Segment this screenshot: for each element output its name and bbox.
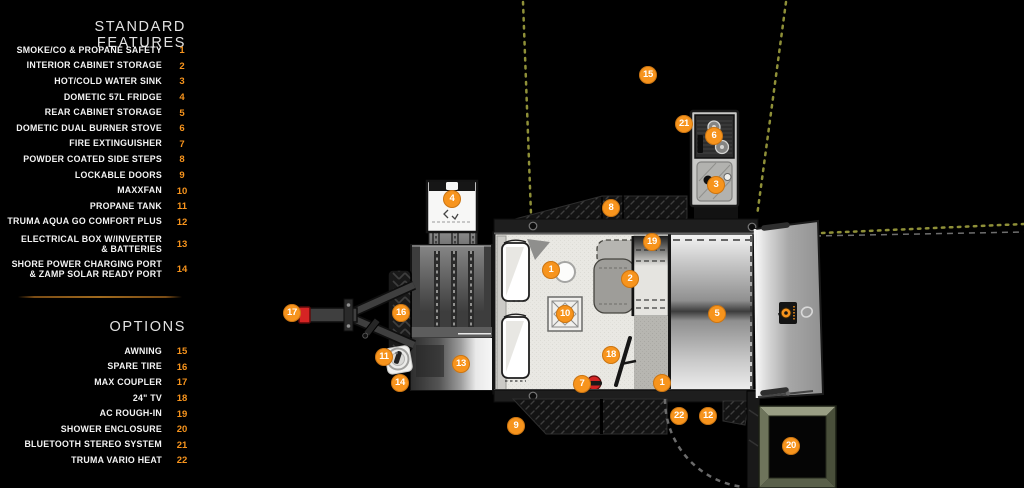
plan-marker: 18	[602, 346, 620, 364]
plan-marker: 11	[375, 348, 393, 366]
plan-marker: 1	[653, 374, 671, 392]
top-wall	[494, 219, 758, 234]
plan-marker: 6	[705, 127, 723, 145]
plan-marker: 13	[452, 355, 470, 373]
plan-marker: 2	[621, 270, 639, 288]
plan-marker: 3	[707, 176, 725, 194]
floorplan: 1 1 2 3 4 5 6 7 8 9 10 11	[0, 0, 1024, 488]
plan-marker: 9	[507, 417, 525, 435]
floorplan-drawing	[0, 0, 1024, 488]
bed-pillow-top	[502, 240, 529, 301]
plan-marker: 7	[573, 375, 591, 393]
plan-marker: 22	[670, 407, 688, 425]
plan-marker: 1	[542, 261, 560, 279]
bed-pillow-bottom	[502, 314, 529, 381]
plan-marker: 20	[782, 437, 800, 455]
plan-marker: 10	[556, 305, 574, 323]
plan-marker: 4	[443, 190, 461, 208]
plan-marker: 16	[392, 304, 410, 322]
plan-marker: 8	[602, 199, 620, 217]
side-step-top	[515, 192, 687, 224]
plan-marker: 17	[283, 304, 301, 322]
plan-marker: 15	[639, 66, 657, 84]
plan-marker: 12	[699, 407, 717, 425]
trailer-floorplan-brochure: STANDARD FEATURES SMOKE/CO & PROPANE SAF…	[0, 0, 1024, 488]
front-storage-box	[411, 245, 492, 390]
plan-marker: 5	[708, 305, 726, 323]
brand-logo	[779, 302, 797, 324]
plan-marker: 14	[391, 374, 409, 392]
plan-marker: 21	[675, 115, 693, 133]
plan-marker: 19	[643, 233, 661, 251]
cabin	[494, 233, 670, 393]
